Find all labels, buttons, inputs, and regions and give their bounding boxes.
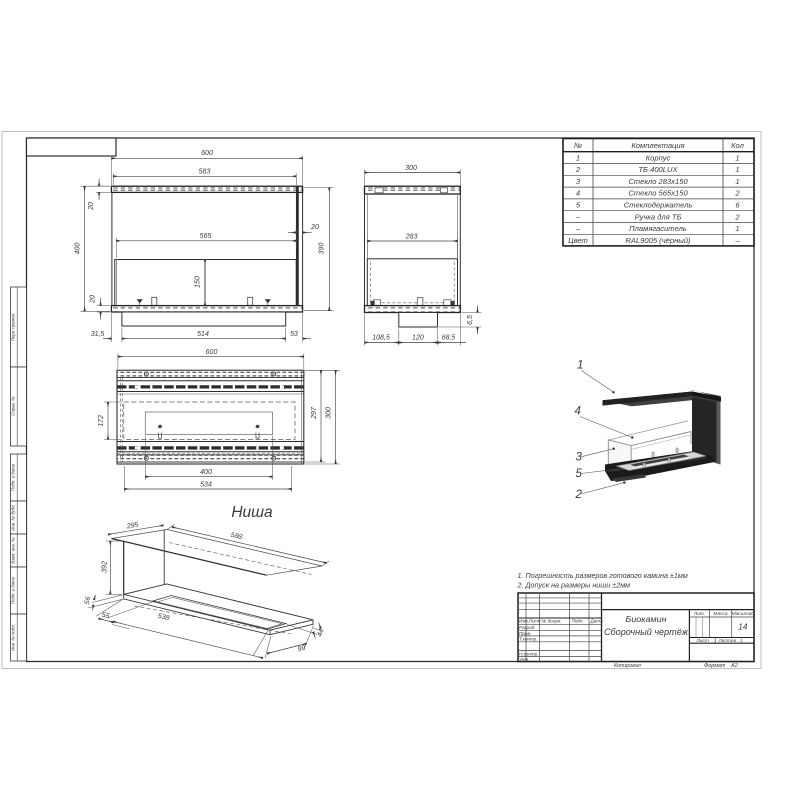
svg-text:172: 172 <box>98 415 105 427</box>
svg-text:1: 1 <box>740 638 743 644</box>
svg-text:Копировал: Копировал <box>614 663 641 669</box>
svg-text:Масса: Масса <box>713 611 728 617</box>
svg-text:514: 514 <box>197 331 209 338</box>
svg-text:Листов: Листов <box>718 638 737 644</box>
svg-text:Перв. примен.: Перв. примен. <box>11 313 16 342</box>
svg-text:Взам. инв. №: Взам. инв. № <box>11 537 16 564</box>
svg-text:14: 14 <box>738 622 748 632</box>
svg-text:Инв. № подл.: Инв. № подл. <box>11 624 16 651</box>
svg-text:108,5: 108,5 <box>372 334 390 341</box>
svg-text:120: 120 <box>412 334 424 341</box>
svg-text:Цвет: Цвет <box>568 236 588 245</box>
svg-text:31,5: 31,5 <box>91 331 105 338</box>
svg-text:600: 600 <box>201 150 213 157</box>
svg-text:А2: А2 <box>730 663 738 669</box>
svg-text:Справ. №: Справ. № <box>11 396 16 416</box>
svg-text:Подп. и дата: Подп. и дата <box>11 463 16 491</box>
svg-text:Корпус: Корпус <box>646 153 671 162</box>
svg-text:Стекло 283х150: Стекло 283х150 <box>628 177 688 186</box>
svg-text:300: 300 <box>405 165 417 172</box>
svg-text:Разраб.: Разраб. <box>519 625 536 630</box>
svg-text:1: 1 <box>576 153 580 162</box>
svg-text:1: 1 <box>735 165 739 174</box>
svg-text:Подп. и дата: Подп. и дата <box>11 576 16 604</box>
svg-text:Лист: Лист <box>696 638 709 644</box>
svg-text:1: 1 <box>735 153 739 162</box>
svg-text:–: – <box>575 212 581 221</box>
svg-text:Ниша: Ниша <box>231 504 273 521</box>
svg-text:20: 20 <box>90 295 97 304</box>
svg-text:300: 300 <box>326 407 333 419</box>
svg-text:Т.контр.: Т.контр. <box>519 637 538 642</box>
svg-text:№ докум.: № докум. <box>542 619 562 624</box>
svg-text:Сборочный чертёж: Сборочный чертёж <box>604 627 689 637</box>
svg-text:534: 534 <box>200 481 212 488</box>
svg-text:600: 600 <box>206 349 218 356</box>
svg-text:Лит.: Лит. <box>693 611 705 617</box>
svg-text:Ручка для ТБ: Ручка для ТБ <box>635 212 682 221</box>
svg-text:4: 4 <box>575 406 581 418</box>
svg-text:1: 1 <box>735 224 739 233</box>
svg-text:–: – <box>575 224 581 233</box>
svg-text:Инв. № дубл.: Инв. № дубл. <box>11 504 16 530</box>
svg-text:Биокамин: Биокамин <box>626 614 667 624</box>
svg-text:Кол: Кол <box>731 141 745 150</box>
svg-text:400: 400 <box>200 469 212 476</box>
svg-text:6,5: 6,5 <box>467 315 474 325</box>
svg-text:20: 20 <box>88 202 95 211</box>
svg-text:3: 3 <box>576 452 583 464</box>
svg-text:Масштаб: Масштаб <box>732 611 755 617</box>
svg-text:283: 283 <box>405 233 418 240</box>
svg-text:Изм.Лист: Изм.Лист <box>519 619 541 624</box>
svg-text:Дата: Дата <box>590 619 604 624</box>
svg-text:5: 5 <box>576 468 583 480</box>
svg-text:565: 565 <box>200 233 212 240</box>
svg-text:68,5: 68,5 <box>442 334 456 341</box>
svg-text:4: 4 <box>576 189 580 198</box>
svg-text:20: 20 <box>310 224 319 231</box>
svg-text:Подп.: Подп. <box>572 619 584 624</box>
svg-text:150: 150 <box>195 276 202 288</box>
svg-text:Утв.: Утв. <box>519 657 529 662</box>
svg-text:1: 1 <box>577 360 583 372</box>
svg-text:–: – <box>734 236 740 245</box>
svg-text:Н.контр.: Н.контр. <box>519 651 538 656</box>
svg-text:ТБ 400LUX: ТБ 400LUX <box>638 165 678 174</box>
svg-text:Пламягаситель: Пламягаситель <box>629 224 687 233</box>
svg-text:390: 390 <box>319 243 326 255</box>
svg-text:53: 53 <box>290 331 298 338</box>
svg-text:297: 297 <box>311 406 318 420</box>
svg-text:Стеклодержатель: Стеклодержатель <box>624 201 693 210</box>
svg-text:Стекло 565х150: Стекло 565х150 <box>628 189 688 198</box>
svg-text:2: 2 <box>734 189 740 198</box>
svg-text:RAL9005 (чёрный): RAL9005 (чёрный) <box>625 236 691 245</box>
svg-text:2. Допуск на размеры ниши ±2мм: 2. Допуск на размеры ниши ±2мм <box>517 581 631 590</box>
svg-text:1: 1 <box>735 177 739 186</box>
svg-text:2: 2 <box>734 212 740 221</box>
svg-text:Пров.: Пров. <box>519 631 531 636</box>
svg-text:1. Погрешность размеров готово: 1. Погрешность размеров готового камина … <box>518 571 688 580</box>
svg-text:2: 2 <box>575 489 583 501</box>
svg-text:№: № <box>574 141 582 150</box>
svg-text:392: 392 <box>102 561 109 573</box>
svg-text:400: 400 <box>75 243 82 255</box>
svg-text:Формат: Формат <box>704 663 726 669</box>
svg-text:2: 2 <box>575 165 581 174</box>
svg-text:583: 583 <box>199 169 211 176</box>
svg-text:Комплектация: Комплектация <box>631 141 684 150</box>
